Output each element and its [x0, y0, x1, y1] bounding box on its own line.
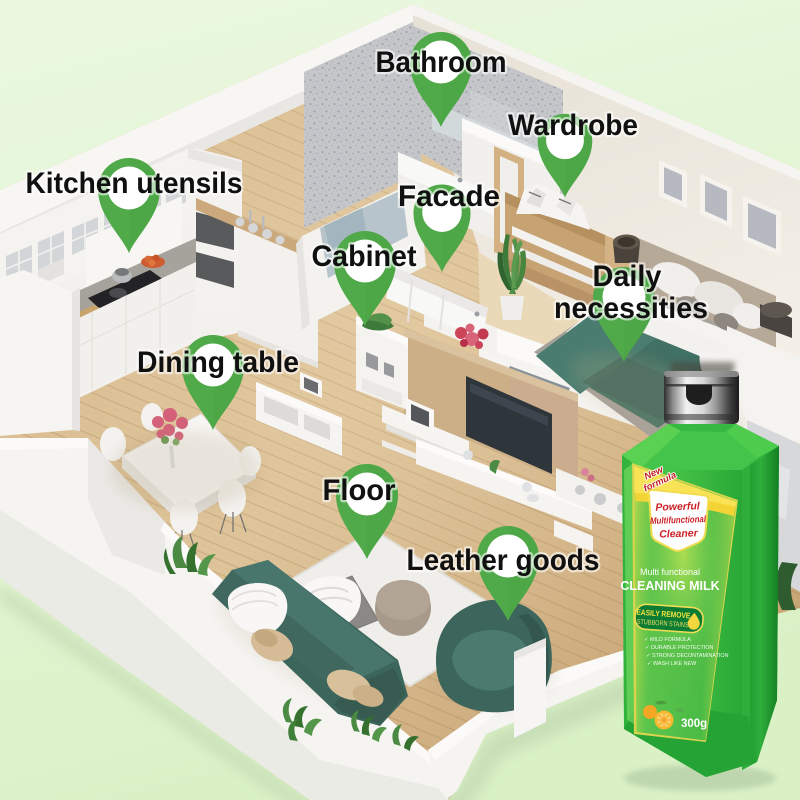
- svg-text:✓ DURABLE PROTECTION: ✓ DURABLE PROTECTION: [645, 645, 713, 651]
- svg-text:Multi functional: Multi functional: [640, 567, 700, 577]
- svg-text:✓ STRONG DECONTAMINATION: ✓ STRONG DECONTAMINATION: [646, 653, 729, 659]
- svg-text:Kitchen utensils: Kitchen utensils: [26, 167, 243, 200]
- svg-text:Multifunctional: Multifunctional: [650, 514, 707, 526]
- svg-text:✓ WASH LIKE NEW: ✓ WASH LIKE NEW: [647, 661, 697, 667]
- svg-text:Dining table: Dining table: [137, 346, 299, 379]
- svg-text:necessities: necessities: [554, 292, 708, 325]
- svg-text:Leather goods: Leather goods: [407, 544, 600, 577]
- svg-text:Cleaner: Cleaner: [659, 527, 699, 540]
- svg-text:Daily: Daily: [593, 260, 662, 293]
- svg-text:Cabinet: Cabinet: [312, 240, 417, 273]
- svg-text:Facade: Facade: [398, 180, 500, 213]
- svg-text:✓ MILD FORMULA: ✓ MILD FORMULA: [644, 637, 691, 643]
- svg-text:Wardrobe: Wardrobe: [508, 109, 638, 142]
- svg-text:Floor: Floor: [323, 474, 396, 507]
- svg-text:300g: 300g: [681, 718, 707, 730]
- svg-text:Bathroom: Bathroom: [376, 46, 507, 79]
- svg-text:CLEANING MILK: CLEANING MILK: [620, 579, 719, 593]
- svg-text:Powerful: Powerful: [655, 500, 701, 514]
